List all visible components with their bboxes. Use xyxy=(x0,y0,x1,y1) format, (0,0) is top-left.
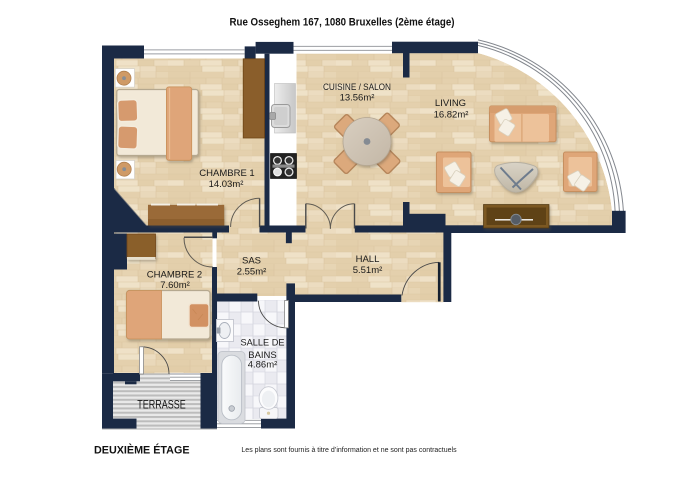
svg-text:4.86m²: 4.86m² xyxy=(248,360,278,371)
svg-text:Les plans sont fournis à titre: Les plans sont fournis à titre d’informa… xyxy=(241,447,457,454)
svg-text:HALL: HALL xyxy=(356,254,380,265)
svg-text:5.51m²: 5.51m² xyxy=(353,265,383,276)
svg-text:Rue Osseghem 167, 1080 Bruxell: Rue Osseghem 167, 1080 Bruxelles (2ème é… xyxy=(230,17,455,29)
svg-text:LIVING: LIVING xyxy=(435,98,466,109)
svg-text:CUISINE / SALON: CUISINE / SALON xyxy=(323,82,391,93)
svg-text:CHAMBRE 2: CHAMBRE 2 xyxy=(147,270,202,281)
svg-text:7.60m²: 7.60m² xyxy=(160,280,190,291)
svg-text:16.82m²: 16.82m² xyxy=(434,110,469,121)
svg-text:2.55m²: 2.55m² xyxy=(237,267,267,278)
svg-text:SALLE DE: SALLE DE xyxy=(241,338,285,349)
svg-text:TERRASSE: TERRASSE xyxy=(137,399,186,411)
svg-text:13.56m²: 13.56m² xyxy=(340,93,375,104)
svg-text:CHAMBRE 1: CHAMBRE 1 xyxy=(199,168,254,179)
svg-text:14.03m²: 14.03m² xyxy=(209,179,244,190)
svg-text:DEUXIÈME ÉTAGE: DEUXIÈME ÉTAGE xyxy=(94,444,190,457)
svg-text:SAS: SAS xyxy=(242,256,261,267)
